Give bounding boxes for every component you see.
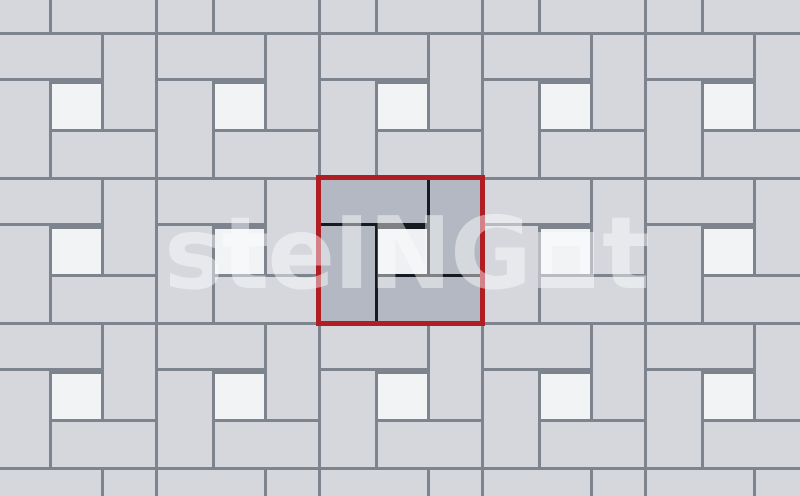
highlighted-paver-center-square: [378, 229, 427, 274]
paver-top-left: [0, 180, 101, 223]
paver-left: [647, 0, 701, 32]
paver-bottom: [541, 277, 644, 322]
paver-center-square: [541, 84, 590, 129]
paver-center-square: [52, 84, 101, 129]
paver-center-square: [215, 229, 264, 274]
highlighted-paver-bottom: [378, 277, 481, 322]
paver-left: [647, 226, 701, 322]
paver-top-left: [158, 325, 264, 368]
paver-top-left: [484, 470, 590, 496]
paver-top-left: [647, 180, 753, 223]
paver-center-square: [704, 84, 753, 129]
paver-center-square: [704, 229, 753, 274]
paver-top-right: [430, 470, 481, 496]
paver-bottom: [704, 277, 800, 322]
paver-top-left: [647, 325, 753, 368]
paver-left: [321, 81, 375, 177]
paver-top-right: [267, 470, 318, 496]
paver-bottom: [52, 132, 155, 177]
paver-top-left: [484, 35, 590, 78]
paver-left: [484, 371, 538, 467]
paver-bottom: [541, 132, 644, 177]
paver-bottom: [541, 0, 644, 32]
paver-top-left: [158, 180, 264, 223]
paver-left: [158, 81, 212, 177]
paver-bottom: [704, 132, 800, 177]
highlighted-paver-top-right: [430, 180, 481, 274]
paver-left: [321, 371, 375, 467]
paving-pattern-canvas: steINGt: [0, 0, 800, 496]
paver-center-square: [215, 374, 264, 419]
paver-center-square: [52, 229, 101, 274]
paver-top-right: [593, 470, 644, 496]
paver-bottom: [378, 132, 481, 177]
paver-top-left: [158, 470, 264, 496]
paver-bottom: [215, 422, 318, 467]
paver-bottom: [541, 422, 644, 467]
paver-top-right: [756, 180, 800, 274]
paver-center-square: [52, 374, 101, 419]
paver-bottom: [52, 277, 155, 322]
paver-bottom: [215, 277, 318, 322]
paver-top-left: [321, 470, 427, 496]
paver-left: [484, 81, 538, 177]
paver-top-right: [756, 325, 800, 419]
paver-bottom: [52, 422, 155, 467]
paver-top-left: [321, 325, 427, 368]
paver-center-square: [704, 374, 753, 419]
paver-center-square: [378, 374, 427, 419]
paver-bottom: [378, 422, 481, 467]
paver-center-square: [378, 84, 427, 129]
paver-left: [647, 371, 701, 467]
paver-bottom: [378, 0, 481, 32]
paver-left: [0, 0, 49, 32]
paver-top-left: [647, 35, 753, 78]
paver-top-right: [104, 470, 155, 496]
paver-left: [158, 226, 212, 322]
paver-left: [158, 0, 212, 32]
paver-bottom: [704, 422, 800, 467]
paver-top-right: [593, 180, 644, 274]
paver-top-right: [267, 35, 318, 129]
paver-top-right: [104, 325, 155, 419]
paver-top-left: [0, 470, 101, 496]
paver-top-right: [593, 325, 644, 419]
paver-top-right: [593, 35, 644, 129]
paver-top-left: [321, 35, 427, 78]
paver-top-right: [430, 325, 481, 419]
paver-bottom: [215, 132, 318, 177]
paver-left: [0, 81, 49, 177]
paver-left: [484, 226, 538, 322]
paver-left: [0, 226, 49, 322]
paver-left: [321, 0, 375, 32]
paver-top-left: [484, 325, 590, 368]
paver-top-right: [756, 470, 800, 496]
paver-left: [484, 0, 538, 32]
paver-top-left: [647, 470, 753, 496]
paver-top-right: [104, 180, 155, 274]
highlighted-paver-top-left: [321, 180, 427, 223]
paver-left: [158, 371, 212, 467]
paver-top-right: [430, 35, 481, 129]
paver-bottom: [704, 0, 800, 32]
paver-center-square: [541, 374, 590, 419]
paver-center-square: [215, 84, 264, 129]
paver-left: [647, 81, 701, 177]
paver-top-left: [158, 35, 264, 78]
paver-top-left: [484, 180, 590, 223]
paver-top-right: [267, 325, 318, 419]
highlighted-paver-left: [321, 226, 375, 322]
paver-left: [0, 371, 49, 467]
paver-top-right: [756, 35, 800, 129]
paver-top-right: [267, 180, 318, 274]
paver-bottom: [52, 0, 155, 32]
paver-top-right: [104, 35, 155, 129]
paver-bottom: [215, 0, 318, 32]
paver-center-square: [541, 229, 590, 274]
paver-top-left: [0, 35, 101, 78]
paver-top-left: [0, 325, 101, 368]
